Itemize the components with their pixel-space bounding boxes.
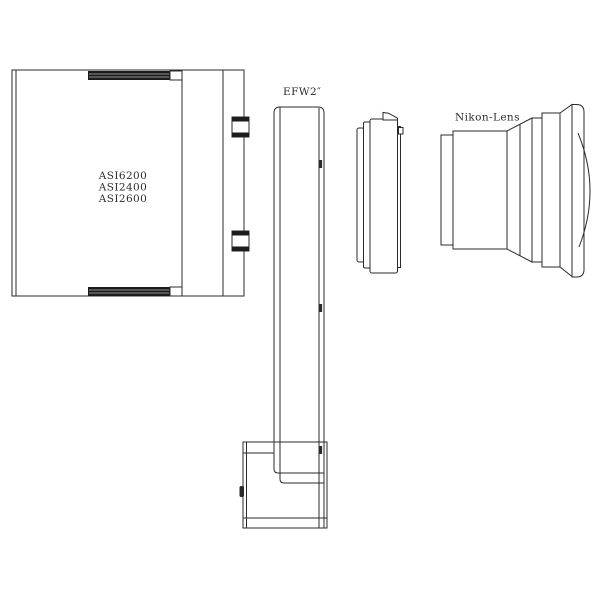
camera-model-line-3: ASI2600 xyxy=(98,193,147,205)
camera-port-upper xyxy=(232,117,249,137)
camera-model-line-1: ASI6200 xyxy=(98,170,147,182)
filter-wheel-motor-housing xyxy=(243,442,327,528)
side-screw-2 xyxy=(320,304,323,312)
camera-port-lower xyxy=(232,231,249,251)
lens-label: Nikon-Lens xyxy=(455,112,520,124)
camera-model-line-2: ASI2400 xyxy=(98,182,147,194)
housing-thumbscrew xyxy=(240,486,245,497)
lens-front-flare xyxy=(560,105,572,277)
diagram-canvas: ASI6200 ASI2400 ASI2600 EFW2″ xyxy=(0,0,600,600)
heatsink-strip-bottom xyxy=(88,287,170,296)
heatsink-notch-bottom xyxy=(170,287,182,296)
filter-wheel-label: EFW2″ xyxy=(283,86,321,98)
port-lower-bottom-bar xyxy=(232,247,249,252)
adapter-lock-pin xyxy=(399,128,404,135)
port-lower-top-bar xyxy=(232,231,249,236)
filter-wheel-drawing: EFW2″ xyxy=(240,86,328,528)
camera-drawing: ASI6200 ASI2400 ASI2600 xyxy=(12,70,249,296)
side-screw-1 xyxy=(320,160,323,168)
lens-barrel xyxy=(453,131,507,249)
port-upper-top-bar xyxy=(232,117,249,122)
lens-drawing: Nikon-Lens xyxy=(441,105,590,278)
heatsink-notch-top xyxy=(170,71,182,80)
camera-assembly-diagram: ASI6200 ASI2400 ASI2600 EFW2″ xyxy=(0,0,600,600)
adapter-drawing xyxy=(357,113,403,274)
adapter-front-ring xyxy=(398,127,401,268)
adapter-rear-flange xyxy=(357,128,364,262)
adapter-release-lever xyxy=(383,113,398,121)
lens-focus-ring-wide xyxy=(542,113,560,267)
port-upper-bottom-bar xyxy=(232,133,249,138)
lens-mount-rear xyxy=(441,135,453,245)
heatsink-strip-top xyxy=(88,71,170,80)
filter-wheel-body-fill xyxy=(274,107,324,473)
adapter-main-body xyxy=(370,119,398,273)
side-screw-3 xyxy=(320,446,323,454)
lens-focus-ring-narrow xyxy=(532,118,542,262)
lens-front-rim xyxy=(572,105,584,278)
